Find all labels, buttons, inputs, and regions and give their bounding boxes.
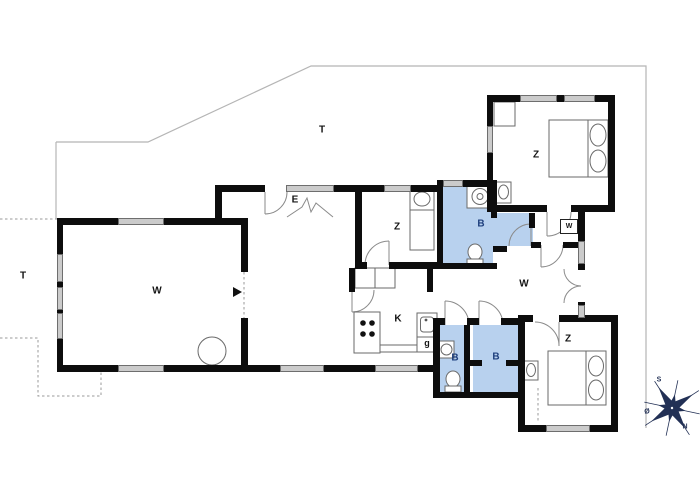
window: [443, 180, 463, 187]
wardrobe-closet-box: W: [560, 219, 578, 234]
sink-ne-icon: [496, 182, 511, 203]
wall: [470, 360, 482, 366]
wall: [389, 262, 443, 269]
wall: [467, 318, 479, 325]
window: [520, 95, 557, 102]
wall: [529, 213, 535, 228]
window: [57, 254, 63, 282]
wall: [437, 185, 443, 269]
opening-arrow-icon: [233, 287, 242, 297]
room-label-bathroom-right: B: [492, 352, 499, 363]
window: [564, 95, 595, 102]
wall: [563, 242, 578, 248]
wall: [355, 185, 362, 269]
wall: [578, 264, 585, 270]
room-label-bedroom-middle: Z: [394, 222, 400, 233]
room-label-bedroom-southeast: Z: [565, 334, 571, 345]
wall: [559, 315, 618, 322]
room-label-bathroom-main: B: [477, 219, 484, 230]
wall: [215, 185, 265, 192]
furniture: [198, 102, 608, 405]
window: [118, 365, 164, 372]
compass-label-east: Ø: [644, 409, 649, 416]
wall: [437, 263, 497, 269]
closet-icon: [494, 102, 515, 126]
double-bed-ne-icon: [549, 120, 608, 177]
window: [375, 365, 418, 372]
compass-label-south: S: [657, 377, 662, 384]
room-label-pantry: g: [424, 338, 430, 348]
wall: [433, 318, 440, 398]
window: [487, 126, 493, 153]
wall: [349, 268, 355, 292]
kitchen-counter-top-icon: [355, 268, 395, 288]
room-label-living-room: W: [152, 286, 161, 297]
wall: [241, 318, 248, 372]
room-label-kitchen: K: [394, 314, 401, 325]
wall: [355, 262, 367, 269]
window: [384, 185, 411, 192]
double-bed-se-icon: [548, 351, 606, 405]
wall: [241, 218, 248, 272]
stove-icon: [354, 312, 380, 353]
compass-label-north: N: [682, 424, 687, 431]
single-bed-icon: [410, 188, 434, 250]
room-label-terrace-north: T: [319, 125, 325, 136]
wall: [433, 392, 525, 398]
window: [578, 305, 585, 318]
window: [578, 241, 585, 264]
wall: [531, 242, 541, 248]
wall: [571, 205, 615, 212]
wall: [493, 246, 507, 252]
wall: [464, 325, 470, 392]
window: [57, 287, 63, 310]
room-label-bedroom-northeast: Z: [533, 150, 539, 161]
window: [280, 365, 324, 372]
wall: [611, 315, 618, 432]
floor-plan: T T W W E Z Z Z B B B K g W S Ø N: [0, 0, 700, 500]
sink-se-icon: [524, 361, 538, 380]
window: [546, 425, 590, 432]
window: [286, 185, 334, 192]
wall: [518, 315, 525, 432]
round-table-icon: [198, 337, 226, 365]
wall: [506, 360, 518, 366]
wall: [608, 95, 615, 212]
wall: [578, 212, 585, 242]
wall: [487, 95, 493, 212]
room-label-entrance: E: [292, 195, 299, 206]
compass-rose: [628, 364, 700, 453]
kitchen-counter-bottom-icon: [380, 345, 417, 352]
room-label-living-dining: W: [519, 279, 528, 290]
window: [57, 313, 63, 339]
wall: [487, 205, 547, 212]
wall: [525, 315, 533, 322]
room-label-terrace-west: T: [20, 271, 26, 282]
room-label-wardrobe: W: [566, 223, 573, 230]
room-label-bathroom-left: B: [451, 353, 458, 364]
window: [118, 218, 164, 225]
toilet-left-bath-icon: [445, 371, 461, 392]
wall: [427, 268, 433, 292]
